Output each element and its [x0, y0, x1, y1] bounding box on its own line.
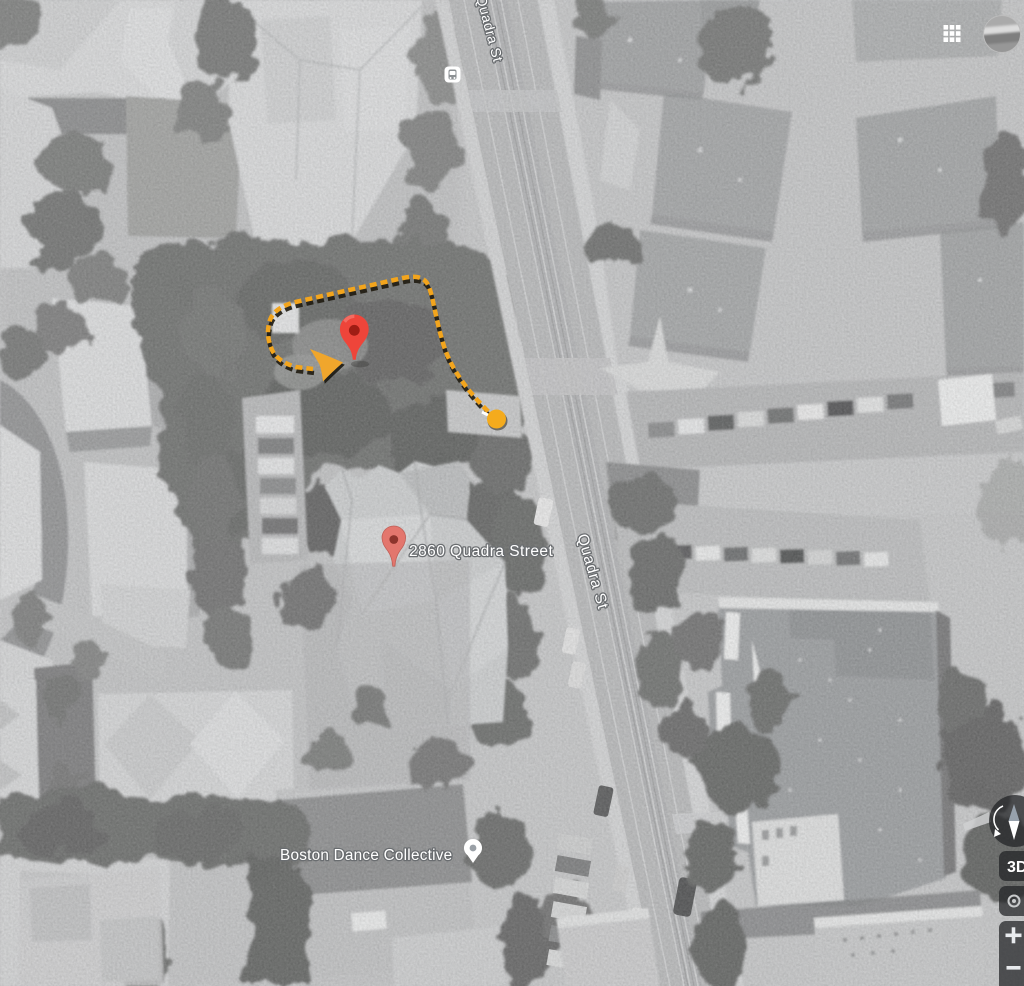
svg-text:Boston Dance Collective: Boston Dance Collective — [280, 847, 452, 864]
svg-text:2860 Quadra Street: 2860 Quadra Street — [409, 543, 553, 560]
svg-text:3D: 3D — [1007, 859, 1024, 876]
